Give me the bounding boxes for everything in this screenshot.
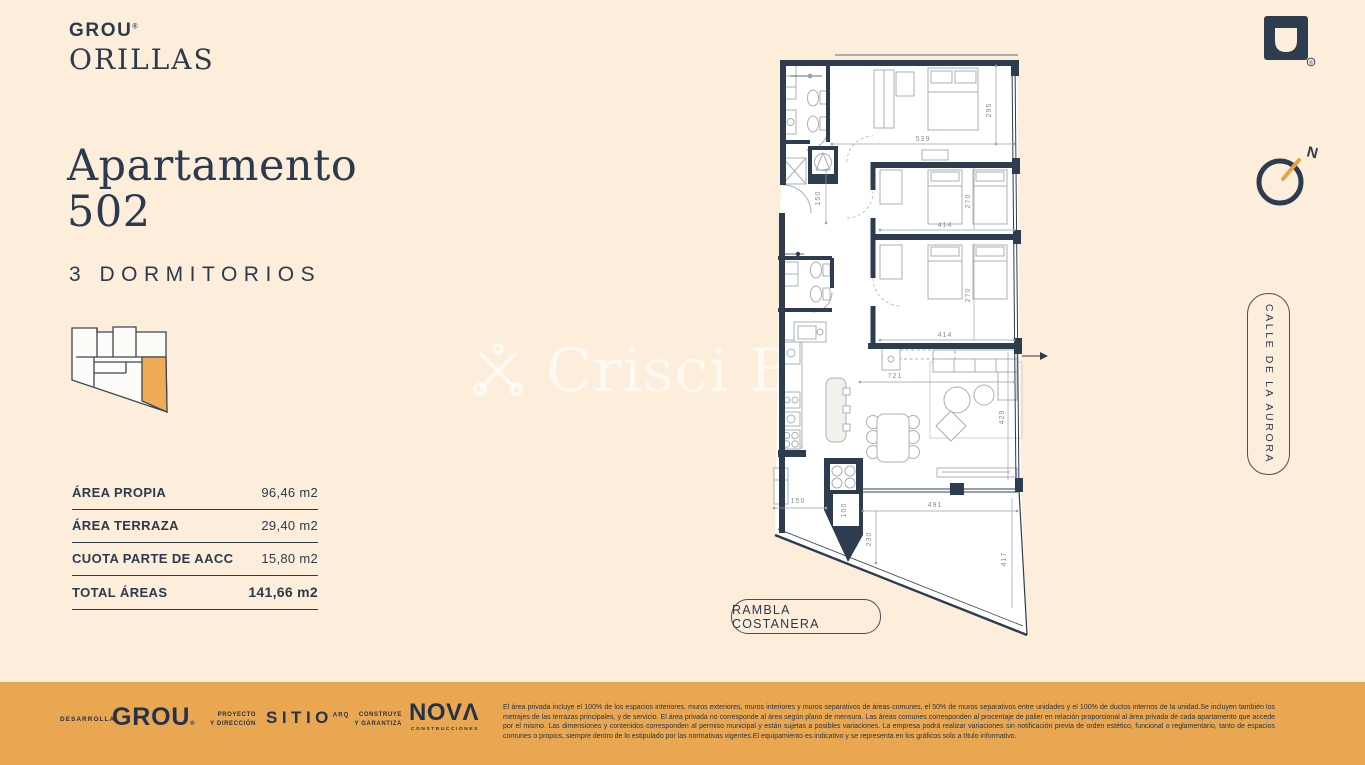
area-label: TOTAL ÁREAS: [72, 585, 167, 600]
dim-label: 230: [866, 532, 873, 547]
area-value: 15,80 m2: [261, 551, 318, 566]
area-label: CUOTA PARTE DE AACC: [72, 551, 233, 566]
brochure-page: GROU® ORILLAS Apartamento 502 3 DORMITOR…: [0, 0, 1365, 765]
watermark-crest-icon: [466, 339, 530, 403]
compass: N: [1246, 138, 1330, 212]
dim-label: 295: [986, 103, 993, 118]
area-label: ÁREA TERRAZA: [72, 518, 179, 533]
dim-label: 270: [965, 194, 972, 209]
developer-name: GROU: [112, 703, 190, 731]
architect-name: SITIO: [266, 708, 333, 727]
project-name: ORILLAS: [69, 43, 215, 76]
developer-logo: GROU®: [112, 703, 195, 732]
architect-logo: SITIOARQ: [266, 708, 349, 728]
page-title: Apartamento 502: [67, 143, 357, 236]
area-value: 96,46 m2: [261, 485, 318, 500]
dim-label: 100: [841, 503, 848, 518]
registered-mark: ®: [1309, 59, 1313, 66]
dim-label: 417: [1001, 552, 1008, 567]
bedrooms-subtitle: 3 DORMITORIOS: [69, 263, 321, 287]
area-label: ÁREA PROPIA: [72, 485, 166, 500]
building-footprint-diagram: [69, 324, 169, 416]
dim-label: 414: [938, 332, 953, 339]
dim-label: 539: [916, 136, 931, 143]
architect-label-line2: Y DIRECCIÓN: [210, 721, 256, 727]
title-line2: 502: [67, 189, 357, 235]
street-label-rambla: RAMBLA COSTANERA: [731, 599, 881, 634]
architect-label: PROYECTO Y DIRECCIÓN: [208, 711, 256, 730]
table-row-total: TOTAL ÁREAS 141,66 m2: [72, 576, 318, 610]
footer: DESARROLLA GROU® PROYECTO Y DIRECCIÓN SI…: [0, 682, 1365, 765]
title-line1: Apartamento: [67, 143, 357, 189]
builder-label-line2: Y GARANTIZA: [355, 721, 403, 727]
dim-label: 270: [965, 288, 972, 303]
grou-symbol-icon: ®: [1258, 12, 1318, 68]
builder-sub: CONSTRUCCIONES: [411, 727, 479, 732]
area-value: 141,66 m2: [248, 584, 318, 600]
builder-label: CONSTRUYE Y GARANTIZA: [352, 711, 402, 730]
architect-sup: ARQ: [333, 712, 349, 718]
dim-label: 491: [928, 502, 943, 509]
dim-label: 150: [815, 191, 822, 206]
dining-furniture: [867, 414, 920, 462]
areas-table: ÁREA PROPIA 96,46 m2 ÁREA TERRAZA 29,40 …: [72, 477, 318, 610]
compass-north-label: N: [1305, 143, 1320, 162]
street-label-calle: CALLE DE LA AURORA: [1247, 293, 1290, 475]
registered-mark: ®: [132, 24, 139, 31]
brand-logo: GROU® ORILLAS: [69, 20, 215, 76]
dim-label: 414: [938, 222, 953, 229]
architect-label-line1: PROYECTO: [218, 712, 256, 718]
table-row: ÁREA PROPIA 96,46 m2: [72, 477, 318, 510]
brand-name: GROU: [69, 20, 132, 41]
dim-label: 721: [888, 373, 903, 380]
table-row: CUOTA PARTE DE AACC 15,80 m2: [72, 543, 318, 576]
registered-mark: ®: [190, 721, 195, 727]
dim-label: 150: [791, 498, 806, 505]
floor-plan: 539 295 414 270 414 270 721 429 491 230 …: [740, 40, 1060, 660]
developer-label: DESARROLLA: [60, 716, 115, 723]
area-value: 29,40 m2: [261, 518, 318, 533]
street-label-calle-text: CALLE DE LA AURORA: [1263, 304, 1275, 464]
dim-label: 429: [999, 410, 1006, 425]
builder-logo: NOVΛ: [409, 701, 479, 725]
legal-text: El área privada incluye el 100% de los e…: [503, 703, 1275, 741]
table-row: ÁREA TERRAZA 29,40 m2: [72, 510, 318, 543]
hall-cabinet: [794, 322, 826, 342]
builder-label-line1: CONSTRUYE: [359, 712, 402, 718]
